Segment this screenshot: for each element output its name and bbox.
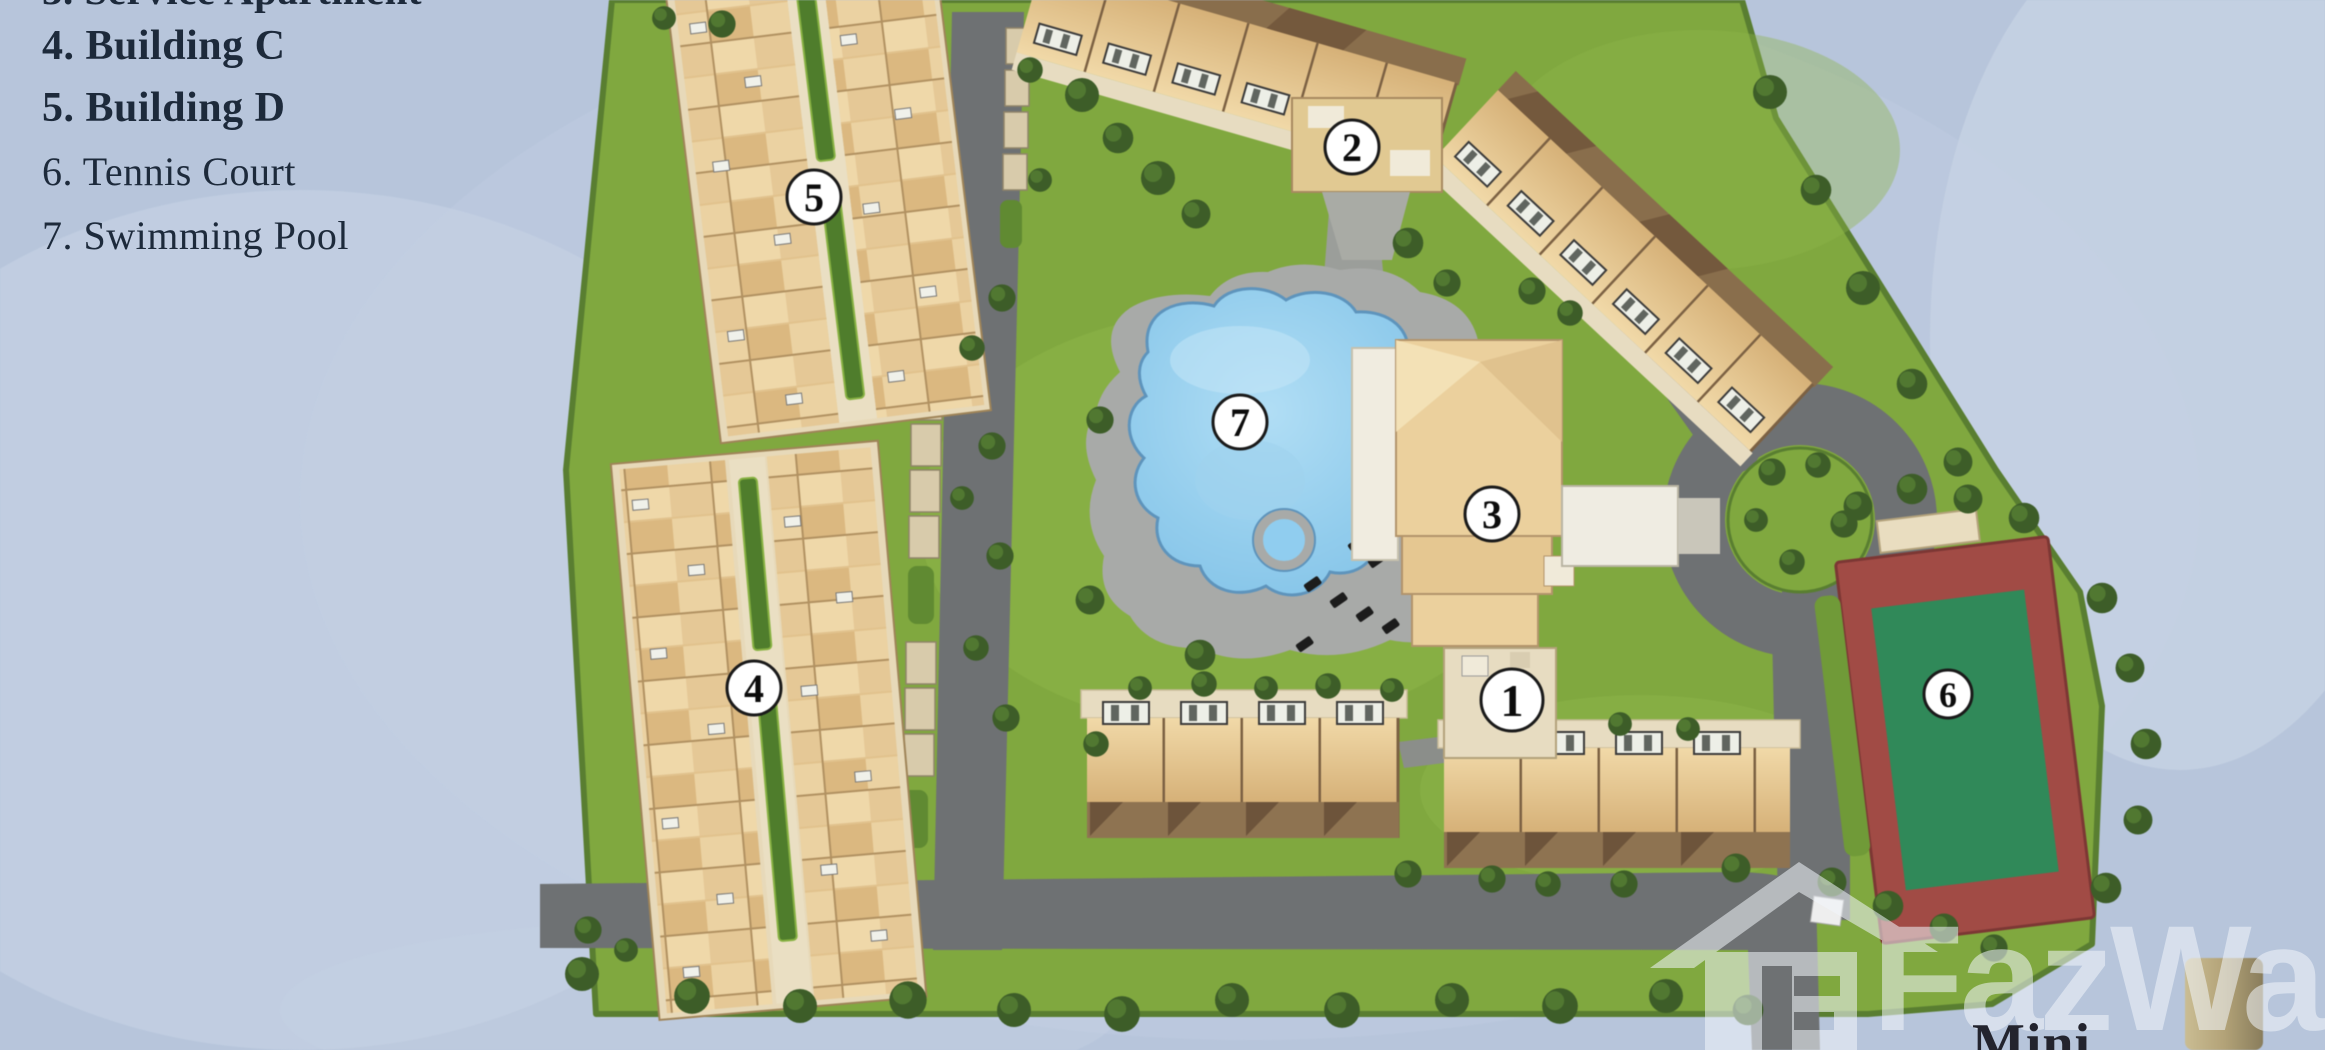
marker-3: 3 <box>1465 487 1519 541</box>
marker-7: 7 <box>1213 395 1267 449</box>
legend-item-swimming-pool: 7. Swimming Pool <box>42 212 349 259</box>
jacuzzi <box>1258 514 1310 566</box>
site-plan-screenshot: 1 2 3 4 5 6 7 <box>0 0 2325 1050</box>
porte-cochere <box>1562 486 1678 566</box>
svg-text:7: 7 <box>1230 400 1250 445</box>
legend-item-building-d: 5. Building D <box>42 84 285 132</box>
svg-text:6: 6 <box>1939 675 1957 715</box>
svg-text:1: 1 <box>1501 675 1524 726</box>
svg-text:2: 2 <box>1342 125 1362 170</box>
marker-1: 1 <box>1481 669 1543 731</box>
gate-pillar <box>2185 958 2263 1050</box>
svg-text:3: 3 <box>1482 492 1502 537</box>
marker-4: 4 <box>727 661 781 715</box>
legend-item-tennis-court: 6. Tennis Court <box>42 148 296 195</box>
marker-6: 6 <box>1924 670 1972 718</box>
mini-mart-label: Mini <box>1972 1012 2091 1050</box>
south-building-row-west <box>1081 690 1407 838</box>
svg-text:4: 4 <box>744 666 764 711</box>
marker-5: 5 <box>787 170 841 224</box>
svg-text:5: 5 <box>804 175 824 220</box>
legend-item-clipped: 3. Service Apartment <box>42 0 422 14</box>
master-plan-map: 1 2 3 4 5 6 7 <box>0 0 2325 1050</box>
legend-item-building-c: 4. Building C <box>42 22 285 70</box>
building-c-block <box>611 441 927 1020</box>
marker-2: 2 <box>1325 120 1379 174</box>
sign <box>1810 896 1843 926</box>
